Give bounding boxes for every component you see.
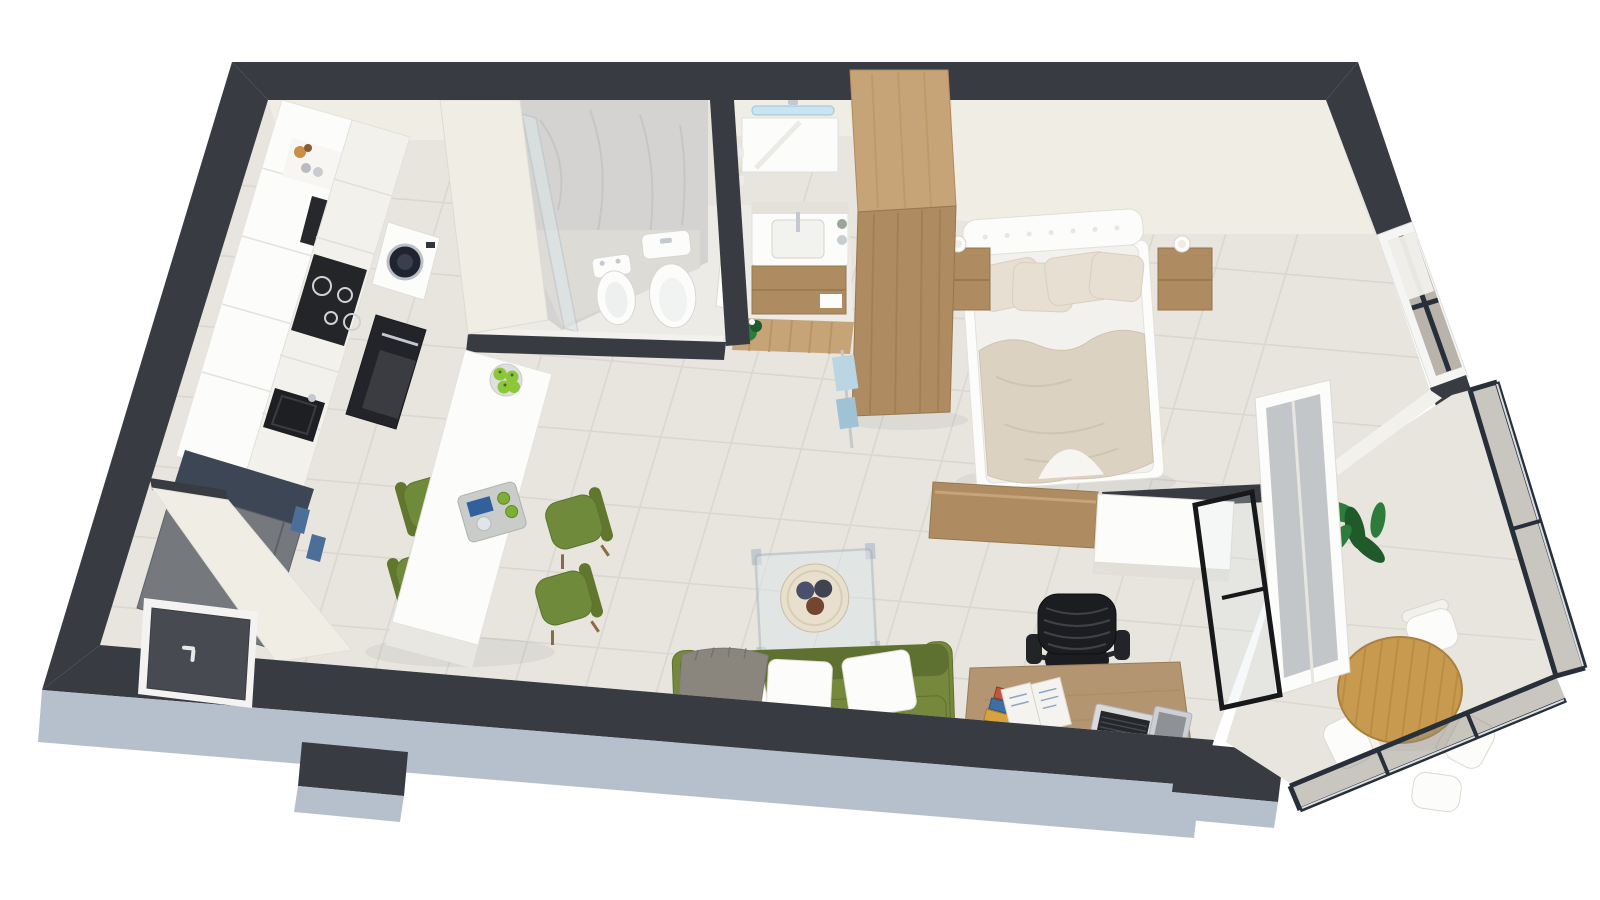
washer-panel [426, 242, 435, 248]
bedroom-wall-face [952, 100, 1374, 234]
entrance-door [138, 598, 258, 708]
soap-bottle-1 [837, 219, 847, 229]
vanity-led-bar [752, 106, 834, 115]
nightstand-right [1158, 248, 1212, 310]
shelf-cup-2 [313, 167, 323, 177]
sofa-cushion-3 [841, 649, 918, 719]
bath-plant-flower [749, 319, 755, 325]
balcony-chair-bottom [1410, 771, 1463, 813]
sink-faucet [308, 394, 316, 402]
door-leaf [147, 608, 250, 700]
floorplan-stage [0, 0, 1600, 900]
top-wall [232, 62, 1358, 100]
vanity-mirror [742, 118, 838, 172]
floorplan-canvas [0, 0, 1600, 900]
shelf-dried-plant-2 [304, 144, 312, 152]
soap-bottle-2 [837, 235, 847, 245]
shelf-cup-1 [301, 163, 311, 173]
vanity-towel [820, 294, 842, 308]
cup-right-inner [1178, 240, 1186, 248]
towel-blue-1 [832, 355, 859, 392]
washer-drum [397, 254, 413, 270]
coffee-table [751, 543, 881, 663]
wardrobe-top-face [850, 70, 956, 212]
